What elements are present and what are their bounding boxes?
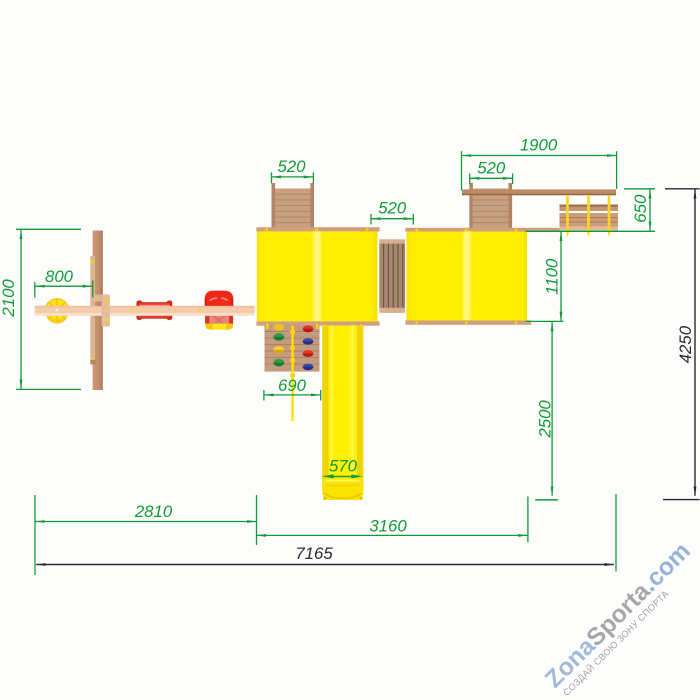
svg-text:2100: 2100 <box>0 279 18 318</box>
svg-text:800: 800 <box>45 267 74 286</box>
svg-text:2500: 2500 <box>536 400 555 439</box>
svg-text:1900: 1900 <box>520 136 558 155</box>
svg-text:690: 690 <box>278 376 307 395</box>
svg-text:570: 570 <box>329 457 358 476</box>
svg-text:520: 520 <box>477 158 506 177</box>
svg-text:520: 520 <box>278 157 307 176</box>
svg-text:520: 520 <box>378 199 407 218</box>
svg-text:4250: 4250 <box>676 325 695 363</box>
svg-text:1100: 1100 <box>543 258 562 295</box>
svg-text:2810: 2810 <box>134 502 173 521</box>
svg-text:7165: 7165 <box>295 544 333 563</box>
svg-text:3160: 3160 <box>369 516 407 535</box>
svg-text:650: 650 <box>631 194 650 223</box>
